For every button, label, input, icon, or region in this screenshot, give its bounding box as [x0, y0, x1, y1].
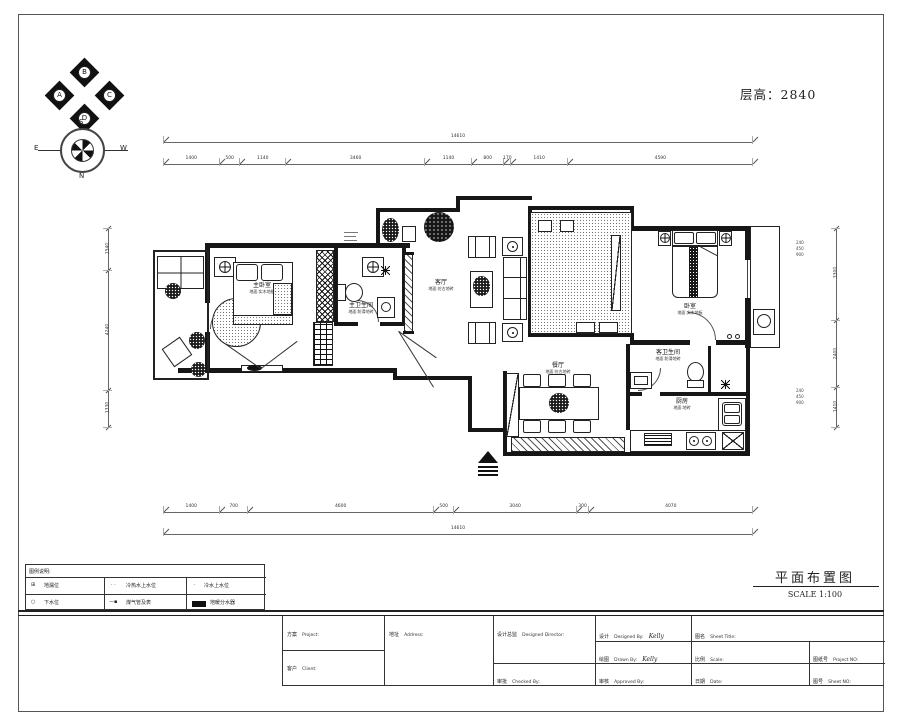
dim-part [103, 228, 112, 229]
legend-label: 地漏位 [44, 582, 59, 589]
room-name: 厨房 [676, 398, 688, 405]
dim-part [103, 270, 112, 271]
dim-label: 3300 [834, 255, 839, 291]
sliding-panel [611, 235, 621, 311]
fridge [722, 432, 744, 450]
compass-letter-s: S [79, 118, 83, 126]
stool [402, 226, 416, 242]
tb-zh: 方案 [287, 632, 297, 638]
tb-hline [493, 663, 595, 664]
border-rule [18, 610, 884, 612]
callout-line: 900 [796, 252, 804, 258]
stool [560, 220, 574, 232]
room-name: 客卫生间 [656, 349, 680, 356]
dimension-line-right: 330024001410 [828, 228, 840, 428]
wall [708, 346, 711, 392]
tb-vline [493, 616, 494, 686]
dim-part [752, 158, 753, 166]
window [747, 260, 748, 298]
stool [599, 322, 618, 333]
dim-part [752, 528, 753, 536]
dim-label: 1410 [519, 156, 559, 161]
room-label-master-bedroom: 主卧室地面:实木地板 [249, 283, 274, 294]
wall [660, 392, 750, 396]
dim-part [163, 164, 753, 165]
room-finish: 地面:防滑地砖 [655, 357, 680, 362]
dining-chair [548, 420, 566, 433]
plant [189, 332, 205, 349]
legend-divider [186, 577, 187, 611]
tb-cell-approved: 审核 Approved By: [599, 668, 644, 687]
dim-part [831, 427, 840, 428]
pillow [696, 232, 716, 244]
cabinet-cap [403, 252, 414, 255]
legend-label: 冷水上水位 [204, 582, 229, 589]
stool [538, 220, 552, 232]
tb-zh: 地址 [389, 632, 399, 638]
tb-cell-sheet-title: 图名 Sheet Title: [695, 623, 736, 642]
room-label-guest-bath: 客卫生间地面:防滑地砖 [655, 350, 680, 361]
dim-part [163, 506, 164, 514]
plant [549, 393, 569, 413]
tb-en: Project NO: [833, 658, 858, 663]
dim-part [510, 158, 511, 166]
room-label-kitchen: 厨房地面:地砖 [673, 399, 690, 410]
tb-en: Scale: [710, 658, 724, 663]
dim-part [752, 136, 753, 144]
legend-label: 下水位 [44, 599, 59, 606]
dim-part [239, 158, 240, 166]
dim-part [163, 158, 164, 166]
elevation-tag: C [103, 89, 116, 102]
wall [393, 376, 472, 380]
tb-cell-designed: 设计 Designed By: Kelly [599, 623, 664, 642]
stool [576, 322, 595, 333]
tb-zh: 日期 [695, 679, 705, 685]
legend-divider [104, 577, 105, 611]
dim-part [163, 534, 753, 535]
dim-part [163, 136, 164, 144]
toilet [687, 362, 704, 382]
toilet [345, 283, 363, 302]
pillow [236, 264, 258, 281]
dimension-line-bottom-total: 14610 [163, 524, 753, 536]
tb-en: Client: [302, 667, 317, 672]
entry-bar [478, 466, 498, 468]
balcony-sofa [157, 256, 204, 289]
dim-part [567, 158, 568, 166]
tb-en: Checked By: [512, 680, 540, 685]
wall [626, 396, 630, 430]
elevation-letter: B [82, 69, 87, 76]
tb-vline [595, 616, 596, 686]
tb-vline [691, 616, 692, 686]
wall [468, 376, 472, 432]
legend-divider [26, 594, 266, 595]
elevation-letter: A [57, 92, 62, 99]
room-label-dining: 餐厅地面:仿古地砖 [545, 363, 570, 374]
dim-part [588, 506, 589, 514]
title-underline [753, 586, 879, 587]
room-label-bedroom: 卧室地面:实木地板 [677, 304, 702, 315]
tb-vline [384, 616, 385, 686]
tb-cell-client: 客户 Client: [287, 655, 317, 674]
elevation-tag: A [53, 89, 66, 102]
vent-grille [644, 433, 672, 446]
washbasin [634, 376, 648, 385]
wall [716, 340, 750, 345]
dim-label: 1410 [834, 389, 839, 425]
water-point-callout: 240 450 900 [796, 388, 804, 406]
dimension-line-top: 140050011403460114080017014104590 [163, 154, 753, 166]
bed-bench [233, 315, 293, 325]
wall-lamp-icon [367, 261, 379, 273]
dim-part [752, 506, 753, 514]
tb-en: Project: [302, 633, 319, 638]
ceiling-lamp-icon [721, 380, 730, 389]
tb-en: Drawn By: [614, 658, 637, 663]
tb-zh: 审核 [599, 679, 609, 685]
legend-divider [26, 577, 266, 578]
tb-zh: 设计总监 [497, 632, 517, 638]
dim-label: 1140 [429, 156, 469, 161]
burner-dot [693, 440, 695, 442]
tb-en: Designed Director: [522, 633, 564, 638]
room-finish: 地面:仿古地砖 [545, 370, 570, 375]
tb-value: Kelly [649, 633, 664, 640]
dim-label: 4240 [106, 311, 111, 347]
room-label-living: 客厅地面:仿古地砖 [428, 280, 453, 291]
dim-part [247, 506, 248, 514]
dim-label: 3040 [495, 504, 535, 509]
shoe-cabinet [506, 373, 519, 437]
dim-label: 3460 [336, 156, 376, 161]
dimension-line-bottom: 1400700460050030403004070 [163, 502, 753, 514]
wall [630, 333, 634, 345]
dining-chair [523, 374, 541, 387]
wall-lamp-icon [219, 261, 231, 273]
washer-drum [757, 314, 771, 328]
legend-icon-floor-drain: ⊞ [31, 582, 35, 588]
wall [178, 368, 395, 373]
tb-hline [283, 650, 384, 651]
tb-cell-date: 日期 Date: [695, 668, 722, 687]
sink-basin [381, 302, 391, 312]
dim-part [424, 158, 425, 166]
wall [468, 428, 506, 432]
tb-en: Approved By: [614, 680, 644, 685]
toilet-tank [687, 380, 704, 388]
room-label-master-bath: 主卫生间地面:防滑地砖 [348, 303, 373, 314]
sink-bowl [724, 404, 740, 413]
room-name: 餐厅 [552, 362, 564, 369]
wardrobe [316, 250, 334, 322]
legend-label: 煤气管及表 [126, 599, 151, 606]
plant [382, 218, 399, 242]
dining-chair [573, 374, 591, 387]
dim-part [831, 320, 840, 321]
armchair [468, 236, 496, 258]
dim-label: 1400 [171, 504, 211, 509]
room-finish: 地面:实木地板 [677, 311, 702, 316]
entry-bar [478, 474, 498, 476]
floor-height-label: 层高：2840 [740, 84, 816, 103]
wall [503, 452, 750, 456]
dim-label: 14610 [438, 526, 478, 531]
tb-en: Sheet NO: [828, 680, 851, 685]
title-block: 方案 Project: 客户 Client: 地址 Address: 设计总监 … [282, 616, 884, 686]
wall [376, 210, 380, 245]
plant [165, 283, 181, 299]
dim-label: 1540 [106, 230, 111, 266]
tb-en: Address: [404, 633, 423, 638]
wall-lamp-icon [660, 233, 670, 243]
room-finish: 地面:防滑地砖 [348, 310, 373, 315]
bed-runner [689, 247, 698, 297]
room-finish: 地面:仿古地砖 [428, 287, 453, 292]
dim-part [831, 228, 840, 229]
tb-cell-address: 地址 Address: [389, 621, 424, 640]
tb-en: Sheet Title: [710, 635, 736, 640]
drawing-title: 平面布置图 [750, 567, 880, 586]
tb-zh: 图号 [813, 679, 823, 685]
note-line [344, 240, 357, 241]
room-finish: 地面:地砖 [673, 406, 690, 411]
ceiling-lamp-icon [381, 266, 390, 275]
bed-blanket [273, 283, 292, 315]
wall [528, 206, 634, 210]
tb-cell-drawn: 绘图 Drawn By: Kelly [599, 646, 657, 665]
pillow [674, 232, 694, 244]
entry-arrow-icon [478, 451, 498, 463]
tb-zh: 审批 [497, 679, 507, 685]
lamp-dot [512, 332, 514, 334]
dim-part [163, 528, 164, 536]
scale-label: SCALE 1:100 [750, 590, 880, 599]
tb-cell-project: 方案 Project: [287, 621, 319, 640]
compass-letter-n: N [79, 172, 84, 180]
drawing-sheet: B A C D S E W N 层高：2840 14610 1400500114… [0, 0, 900, 720]
round-table [424, 212, 454, 242]
tb-en: Date: [710, 680, 722, 685]
tb-cell-scale: 比例 Scale: [695, 646, 724, 665]
tb-en: Designed By: [614, 635, 644, 640]
legend-title: 图例说明: [29, 568, 51, 575]
tb-cell-checked: 审批 Checked By: [497, 668, 540, 687]
armchair [468, 322, 496, 344]
dimension-line-top-total: 14610 [163, 132, 753, 144]
gas-meter-icon [735, 334, 740, 339]
plant [191, 362, 206, 377]
elevation-letter: C [107, 92, 112, 99]
dim-label: 2400 [834, 335, 839, 371]
gas-meter-icon [727, 334, 732, 339]
wall-lamp-icon [721, 233, 731, 243]
room-name: 主卧室 [253, 282, 271, 289]
legend: 图例说明: ⊞ 地漏位 · · 冷热水上水位 · 冷水上水位 ○ 下水位 —▪ … [25, 564, 265, 610]
note-line [344, 232, 358, 233]
lamp-dot [512, 246, 514, 248]
legend-icon-drain: ○ [31, 599, 35, 605]
dim-part [163, 142, 753, 143]
tb-value: Kelly [642, 656, 657, 663]
dim-part [103, 427, 112, 428]
legend-label: 地暖分水器 [210, 599, 235, 606]
dim-part [285, 158, 286, 166]
wall [376, 208, 460, 212]
dim-label: 4600 [321, 504, 361, 509]
tb-zh: 绘图 [599, 657, 609, 663]
elevation-tag: B [78, 66, 91, 79]
wall [746, 345, 750, 456]
plant [473, 276, 490, 296]
dim-part [453, 506, 454, 514]
wall [456, 196, 532, 200]
tb-cell-sheet-no: 图号 Sheet NO: [813, 668, 851, 687]
legend-icon-floor-heating-manifold [192, 601, 206, 607]
note-line [344, 236, 356, 237]
dim-label: 1140 [243, 156, 283, 161]
tb-zh: 图名 [695, 634, 705, 640]
entry-bar [478, 470, 498, 472]
wall [630, 340, 690, 345]
dim-label: 4590 [640, 156, 680, 161]
room-finish: 地面:实木地板 [249, 290, 274, 295]
legend-icon-cold-water: · [194, 582, 196, 588]
dining-chair [523, 420, 541, 433]
sink-bowl [724, 415, 740, 424]
legend-icon-gas-pipe: —▪ [109, 599, 117, 605]
legend-label: 冷热水上水位 [126, 582, 156, 589]
callout-line: 900 [796, 400, 804, 406]
tb-cell-project-no: 图纸号 Project NO: [813, 646, 858, 665]
sofa [503, 257, 527, 320]
tb-zh: 比例 [695, 657, 705, 663]
dining-chair [548, 374, 566, 387]
tb-zh: 设计 [599, 634, 609, 640]
room-name: 卧室 [684, 303, 696, 310]
tv-cabinet [404, 254, 413, 332]
dimension-line-left: 154042401330 [100, 228, 112, 428]
dim-label: 14610 [438, 134, 478, 139]
legend-icon-hot-cold-water: · · [111, 582, 116, 588]
tb-cell-director: 设计总监 Designed Director: [497, 621, 564, 640]
dining-chair [573, 420, 591, 433]
water-point-callout: 240 450 900 [796, 240, 804, 258]
burner-dot [706, 440, 708, 442]
pillow [261, 264, 283, 281]
tb-zh: 客户 [287, 666, 297, 672]
compass: S E W N [30, 116, 136, 186]
dim-label: 1400 [171, 156, 211, 161]
dim-part [163, 512, 753, 513]
room-name: 客厅 [435, 279, 447, 286]
room-name: 主卫生间 [349, 302, 373, 309]
wall [334, 322, 358, 326]
dim-label: 4070 [651, 504, 691, 509]
compass-rose-icon [71, 139, 94, 162]
cabinet-cap [403, 331, 414, 334]
dim-label: 300 [563, 504, 603, 509]
tb-zh: 图纸号 [813, 657, 828, 663]
flue-column [313, 322, 333, 366]
storage-bench [511, 437, 625, 452]
dim-label: 1330 [106, 390, 111, 426]
